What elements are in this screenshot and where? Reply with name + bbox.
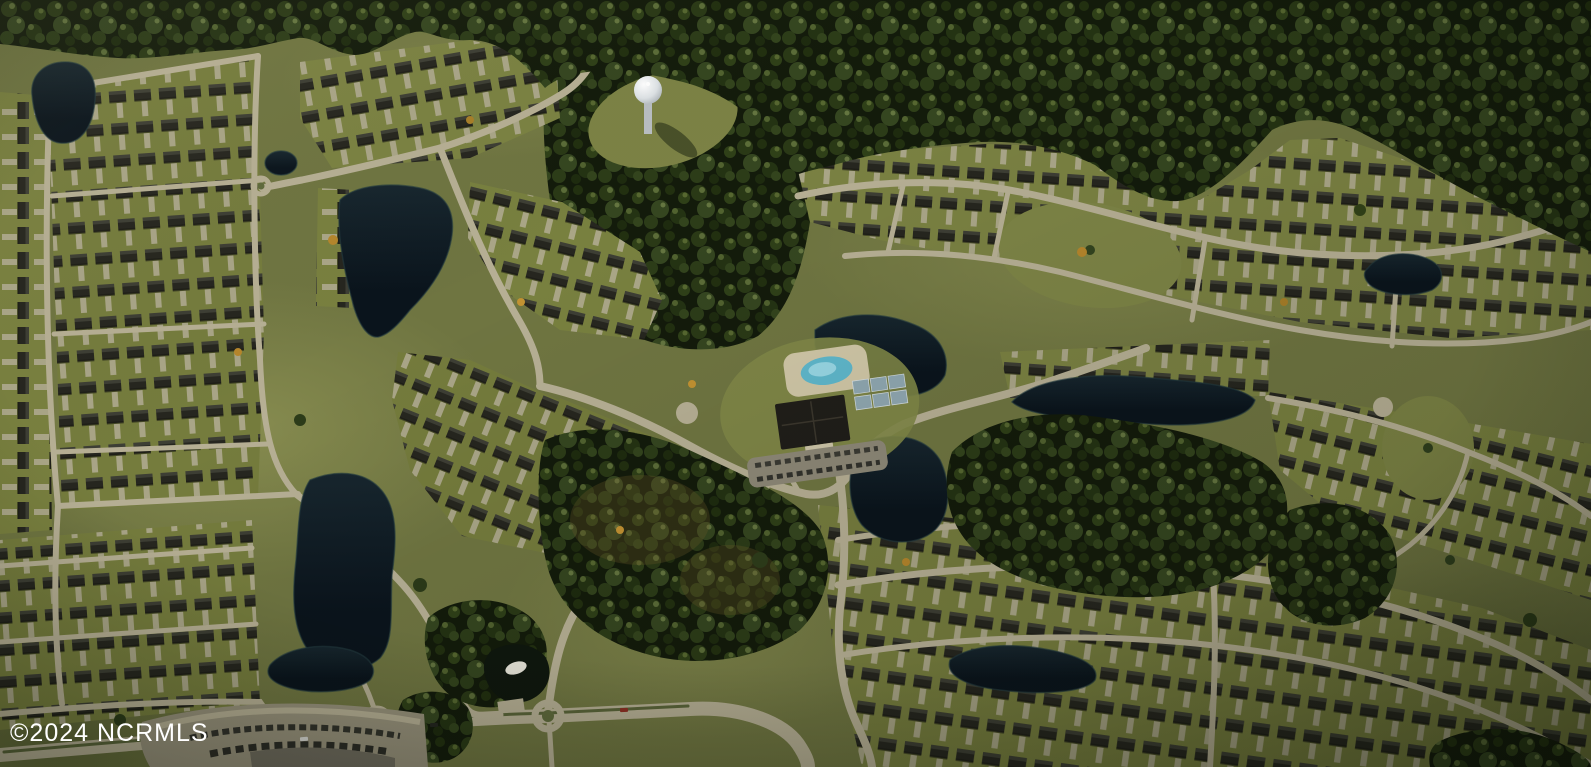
watermark-text: ©2024 NCRMLS bbox=[10, 719, 209, 747]
scene-canvas: ©2024 NCRMLS bbox=[0, 0, 1591, 767]
aerial-community-render: ©2024 NCRMLS bbox=[0, 0, 1591, 767]
vignette-overlay bbox=[0, 0, 1591, 767]
